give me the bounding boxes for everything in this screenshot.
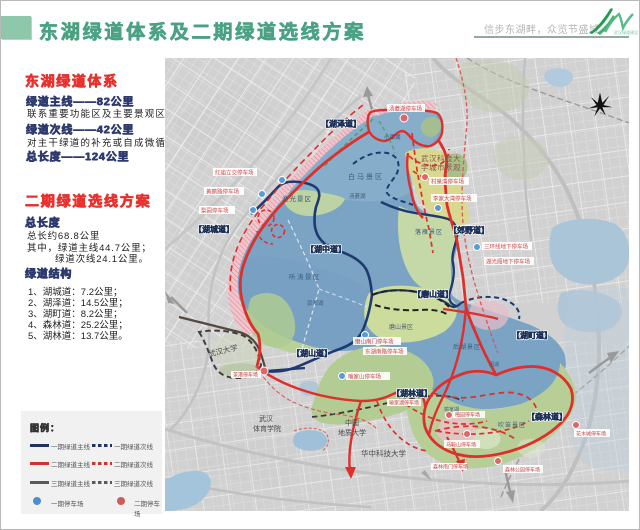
svg-text:喻家湖停车场: 喻家湖停车场 bbox=[389, 400, 419, 407]
svg-text:白马景区: 白马景区 bbox=[348, 172, 384, 181]
svg-text:喻家山停车场: 喻家山停车场 bbox=[348, 373, 382, 381]
svg-text:花木城停车场: 花木城停车场 bbox=[576, 431, 606, 438]
svg-text:森林公园停车场: 森林公园停车场 bbox=[505, 467, 540, 474]
svg-text:湖光阁地下停车场: 湖光阁地下停车场 bbox=[486, 258, 531, 266]
svg-text:三环线地下停车场: 三环线地下停车场 bbox=[484, 243, 529, 251]
svg-text:李家大湾停车场: 李家大湾停车场 bbox=[433, 195, 472, 203]
svg-text:马鞍山停车场: 马鞍山停车场 bbox=[446, 442, 476, 449]
svg-text:磨山景区: 磨山景区 bbox=[389, 323, 413, 331]
svg-text:郭郑湖: 郭郑湖 bbox=[307, 299, 324, 307]
svg-text:【湖泽道】: 【湖泽道】 bbox=[321, 119, 361, 129]
svg-text:【湖城道】: 【湖城道】 bbox=[194, 224, 234, 234]
svg-text:团湖: 团湖 bbox=[489, 361, 499, 368]
svg-text:红庙立交停车场: 红庙立交停车场 bbox=[215, 169, 254, 177]
svg-text:【森林道】: 【森林道】 bbox=[527, 412, 567, 422]
svg-text:【磨山道】: 【磨山道】 bbox=[413, 289, 453, 299]
svg-text:后湖景区: 后湖景区 bbox=[453, 343, 481, 351]
svg-text:汤菱湖: 汤菱湖 bbox=[349, 192, 366, 200]
svg-text:汤菱湖停车场: 汤菱湖停车场 bbox=[389, 105, 423, 113]
svg-text:【郊野道】: 【郊野道】 bbox=[449, 225, 489, 235]
svg-text:磨山南门停车场: 磨山南门停车场 bbox=[355, 338, 394, 346]
svg-text:学城市景观: 学城市景观 bbox=[421, 162, 461, 172]
svg-text:中国: 中国 bbox=[345, 418, 359, 427]
svg-text:体育学院: 体育学院 bbox=[253, 424, 281, 433]
svg-text:喻家湖: 喻家湖 bbox=[444, 406, 459, 413]
svg-text:黄鹂路停车场: 黄鹂路停车场 bbox=[206, 188, 240, 196]
svg-text:【湖林道】: 【湖林道】 bbox=[392, 388, 432, 398]
svg-text:武汉: 武汉 bbox=[259, 414, 273, 423]
svg-text:茶港停车场: 茶港停车场 bbox=[233, 372, 258, 379]
svg-text:武汉绿道建设: 武汉绿道建设 bbox=[614, 29, 638, 35]
svg-text:吹笛景区: 吹笛景区 bbox=[498, 421, 526, 429]
svg-text:【湖山道】: 【湖山道】 bbox=[292, 348, 332, 358]
svg-text:渔光景区: 渔光景区 bbox=[282, 194, 312, 203]
svg-text:村泉湾停车场: 村泉湾停车场 bbox=[431, 178, 465, 186]
svg-text:梨园停车场: 梨园停车场 bbox=[201, 207, 229, 215]
svg-text:落雁景区: 落雁景区 bbox=[415, 228, 443, 236]
svg-text:小潭湖: 小潭湖 bbox=[384, 133, 401, 141]
svg-text:【湖中道】: 【湖中道】 bbox=[306, 244, 346, 254]
svg-text:听涛景区: 听涛景区 bbox=[289, 272, 321, 281]
svg-text:武汉科技大: 武汉科技大 bbox=[421, 153, 461, 163]
svg-text:森林南门停车场: 森林南门停车场 bbox=[433, 464, 468, 471]
svg-text:地质大学: 地质大学 bbox=[338, 428, 366, 437]
svg-text:【湖町道】: 【湖町道】 bbox=[512, 330, 552, 340]
svg-text:东湖南路停车场: 东湖南路停车场 bbox=[365, 348, 404, 356]
svg-text:华中科技大学: 华中科技大学 bbox=[361, 448, 406, 458]
